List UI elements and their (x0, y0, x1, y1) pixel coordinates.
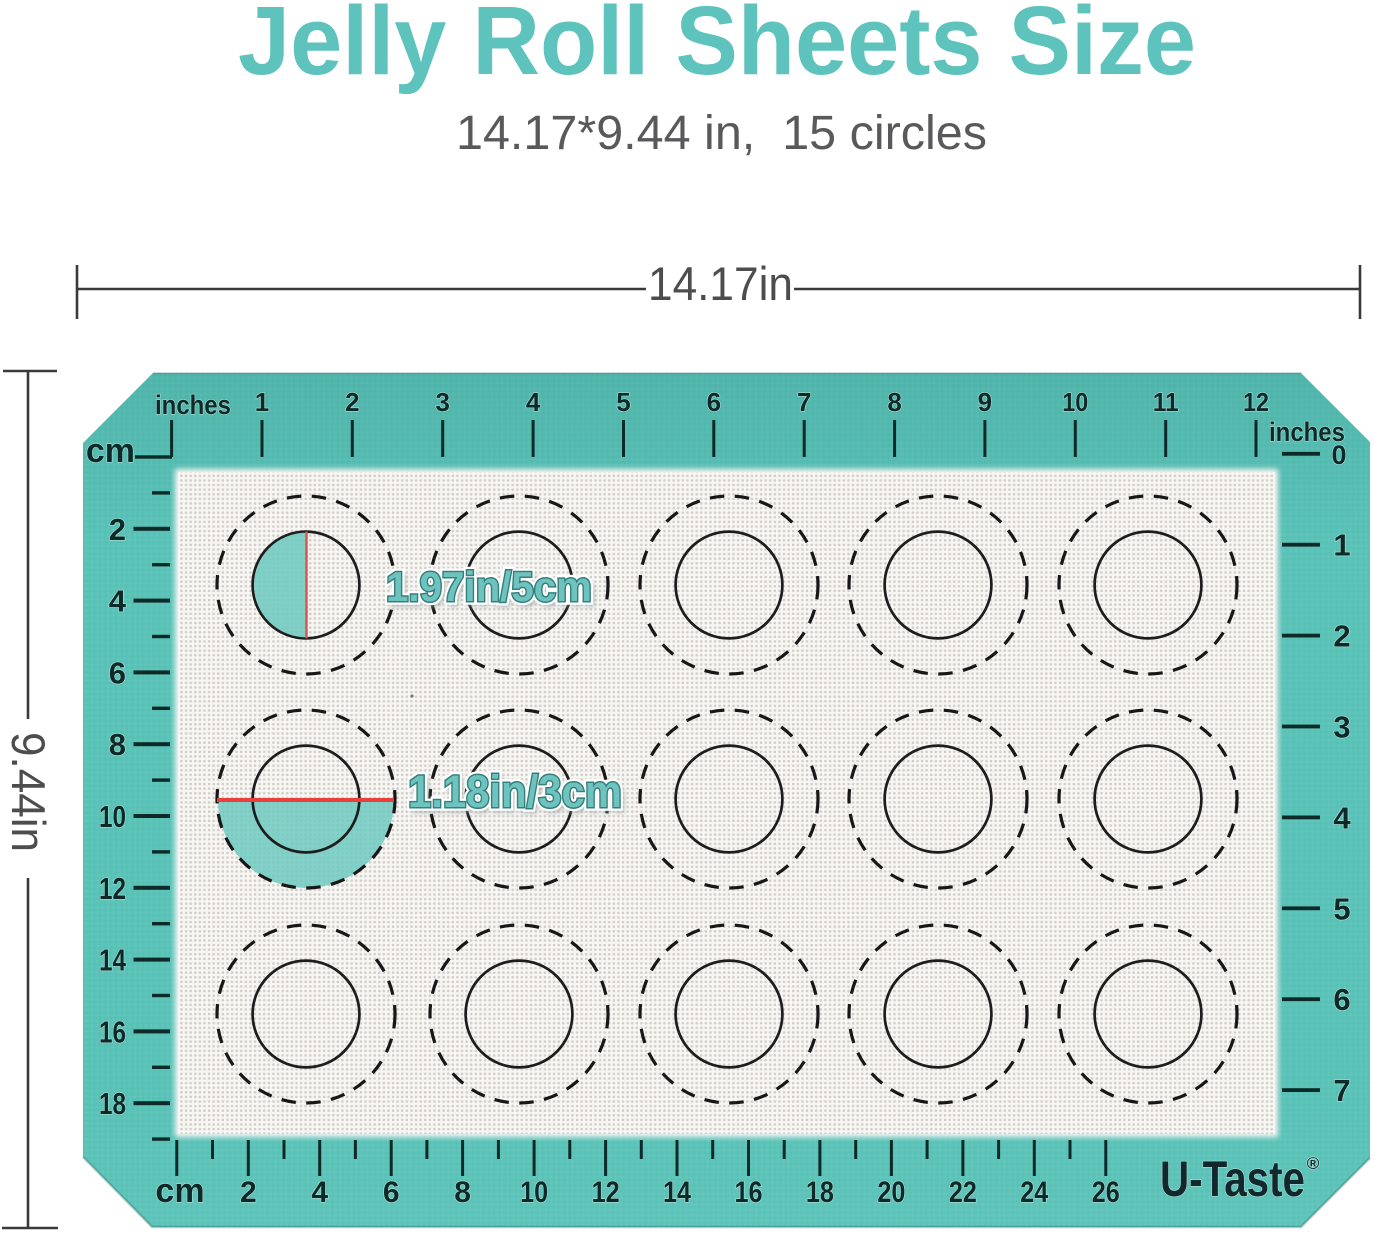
svg-text:16: 16 (735, 1176, 763, 1209)
svg-text:20: 20 (877, 1176, 905, 1209)
svg-text:14.17*9.44 in, 15 circles: 14.17*9.44 in, 15 circles (456, 107, 987, 160)
svg-text:8: 8 (109, 727, 126, 762)
svg-text:2: 2 (240, 1176, 257, 1209)
svg-text:®: ® (1307, 1154, 1320, 1173)
svg-text:14.17in: 14.17in (648, 257, 793, 310)
svg-text:1: 1 (1333, 528, 1350, 563)
svg-text:0: 0 (1331, 440, 1346, 470)
svg-text:1.18in/3cm: 1.18in/3cm (408, 766, 622, 817)
svg-text:18: 18 (806, 1176, 834, 1209)
svg-text:6: 6 (707, 387, 721, 417)
svg-text:18: 18 (99, 1086, 126, 1121)
svg-text:5: 5 (1333, 891, 1350, 926)
svg-text:2: 2 (109, 512, 126, 547)
svg-text:14: 14 (99, 943, 127, 978)
svg-text:12: 12 (592, 1176, 620, 1209)
svg-text:7: 7 (1333, 1073, 1350, 1108)
svg-text:16: 16 (99, 1014, 126, 1049)
svg-text:10: 10 (520, 1176, 548, 1209)
svg-text:cm: cm (155, 1172, 204, 1210)
svg-text:4: 4 (311, 1176, 328, 1209)
svg-text:6: 6 (109, 655, 126, 690)
svg-text:22: 22 (949, 1176, 977, 1209)
svg-text:4: 4 (526, 387, 541, 417)
svg-text:cm: cm (86, 432, 135, 470)
svg-text:26: 26 (1092, 1176, 1120, 1209)
svg-text:9: 9 (978, 387, 992, 417)
svg-text:8: 8 (454, 1176, 471, 1209)
svg-text:12: 12 (1243, 387, 1269, 417)
svg-text:4: 4 (109, 584, 127, 619)
svg-text:7: 7 (797, 387, 811, 417)
svg-text:10: 10 (99, 799, 126, 834)
svg-text:12: 12 (99, 871, 126, 906)
svg-text:6: 6 (1333, 982, 1350, 1017)
svg-text:1: 1 (255, 387, 269, 417)
svg-text:1.97in/5cm: 1.97in/5cm (386, 563, 592, 610)
svg-text:11: 11 (1153, 387, 1179, 417)
svg-text:U-Taste: U-Taste (1160, 1151, 1305, 1207)
svg-text:3: 3 (1333, 710, 1350, 745)
svg-text:9.44in: 9.44in (2, 732, 55, 852)
svg-text:8: 8 (887, 387, 901, 417)
svg-text:3: 3 (435, 387, 449, 417)
svg-text:inches: inches (155, 390, 231, 420)
svg-text:5: 5 (616, 387, 630, 417)
svg-text:6: 6 (383, 1176, 400, 1209)
svg-text:4: 4 (1333, 800, 1351, 835)
svg-text:2: 2 (1333, 619, 1350, 654)
svg-text:10: 10 (1062, 387, 1088, 417)
svg-text:14: 14 (663, 1176, 691, 1209)
svg-text:24: 24 (1020, 1176, 1048, 1209)
svg-text:Jelly Roll Sheets Size: Jelly Roll Sheets Size (238, 0, 1196, 95)
svg-text:2: 2 (345, 387, 359, 417)
